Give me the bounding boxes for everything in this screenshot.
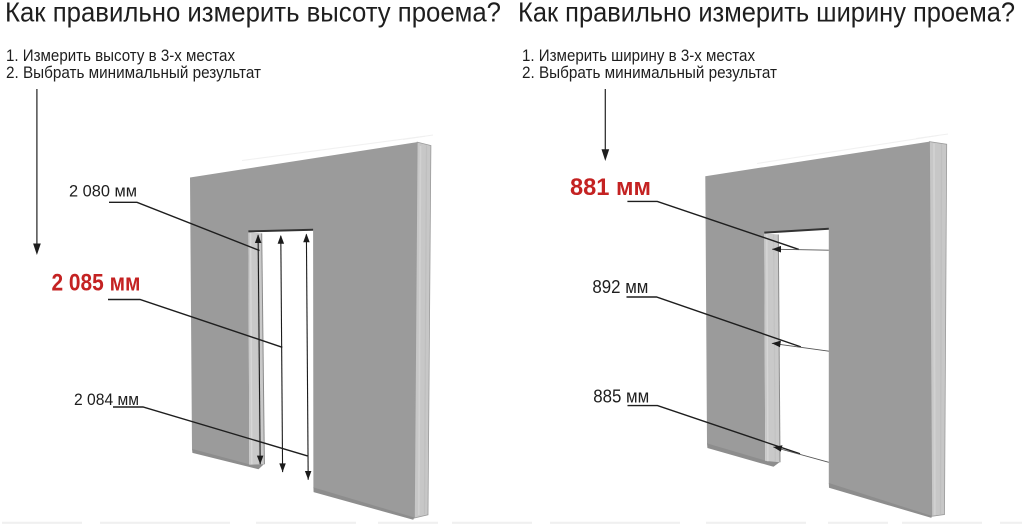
svg-text:885 мм: 885 мм [593,386,649,406]
svg-text:2. Выбрать минимальный результ: 2. Выбрать минимальный результат [522,64,777,82]
svg-text:2 084 мм: 2 084 мм [74,390,139,409]
svg-text:2. Выбрать минимальный результ: 2. Выбрать минимальный результат [6,64,261,82]
svg-text:1. Измерить высоту в 3-х места: 1. Измерить высоту в 3-х местах [6,47,236,65]
svg-text:881 мм: 881 мм [570,174,651,201]
svg-text:Как правильно измерить высоту: Как правильно измерить высоту проема? [5,0,501,28]
svg-text:Как правильно измерить ширину: Как правильно измерить ширину проема? [518,0,1015,28]
svg-text:2 085 мм: 2 085 мм [52,270,141,297]
svg-text:2 080 мм: 2 080 мм [69,182,137,201]
svg-text:1. Измерить ширину в 3-х места: 1. Измерить ширину в 3-х местах [522,47,756,65]
svg-text:892 мм: 892 мм [592,277,648,297]
